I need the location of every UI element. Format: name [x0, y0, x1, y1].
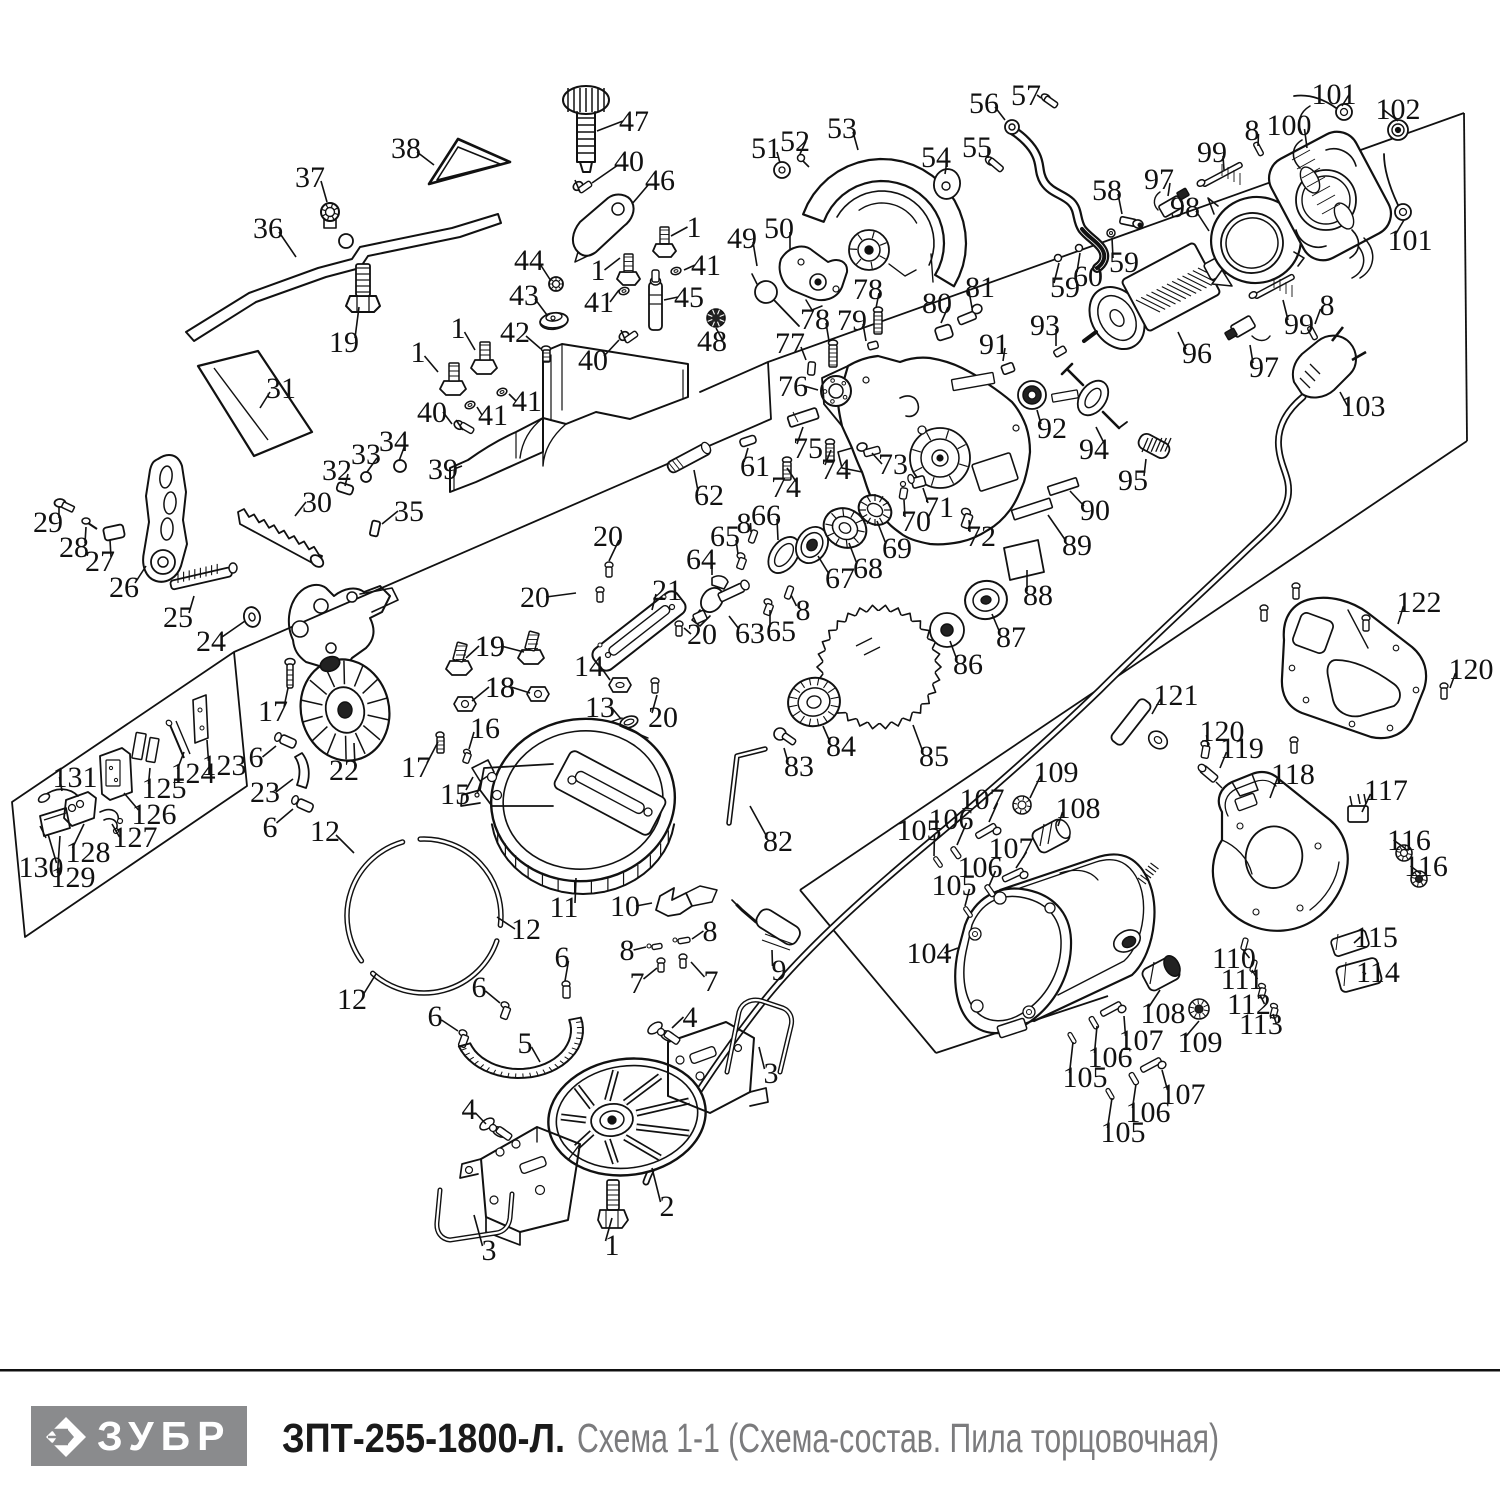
svg-text:8: 8 [796, 594, 811, 627]
svg-text:8: 8 [737, 507, 752, 540]
svg-text:97: 97 [1249, 351, 1279, 384]
svg-text:12: 12 [511, 913, 541, 946]
svg-text:32: 32 [322, 454, 352, 487]
svg-text:41: 41 [478, 399, 508, 432]
svg-text:41: 41 [691, 249, 721, 282]
svg-text:40: 40 [614, 145, 644, 178]
svg-text:8: 8 [1245, 114, 1260, 147]
svg-text:54: 54 [921, 141, 951, 174]
svg-text:82: 82 [763, 825, 793, 858]
svg-text:65: 65 [766, 615, 796, 648]
svg-text:43: 43 [509, 279, 539, 312]
svg-text:16: 16 [470, 712, 500, 745]
svg-text:73: 73 [878, 448, 908, 481]
svg-text:51: 51 [751, 132, 781, 165]
svg-text:23: 23 [250, 776, 280, 809]
svg-text:41: 41 [584, 286, 614, 319]
svg-text:38: 38 [391, 132, 421, 165]
svg-text:52: 52 [780, 125, 810, 158]
svg-text:68: 68 [853, 552, 883, 585]
svg-text:19: 19 [329, 326, 359, 359]
svg-text:105: 105 [1063, 1061, 1108, 1094]
svg-text:53: 53 [827, 112, 857, 145]
svg-text:20: 20 [687, 618, 717, 651]
svg-text:83: 83 [784, 750, 814, 783]
svg-text:96: 96 [1182, 337, 1212, 370]
svg-text:99: 99 [1284, 308, 1314, 341]
svg-text:116: 116 [1404, 850, 1448, 883]
svg-text:78: 78 [853, 273, 883, 306]
svg-text:1: 1 [591, 254, 606, 287]
svg-text:15: 15 [440, 778, 470, 811]
svg-text:6: 6 [555, 941, 570, 974]
svg-text:105: 105 [1101, 1116, 1146, 1149]
svg-text:5: 5 [518, 1027, 533, 1060]
svg-text:63: 63 [735, 617, 765, 650]
svg-text:59: 59 [1050, 271, 1080, 304]
svg-text:99: 99 [1197, 136, 1227, 169]
svg-text:48: 48 [697, 325, 727, 358]
svg-text:33: 33 [351, 438, 381, 471]
svg-text:120: 120 [1449, 653, 1494, 686]
svg-text:121: 121 [1154, 679, 1199, 712]
svg-text:6: 6 [249, 741, 264, 774]
svg-text:8: 8 [703, 915, 718, 948]
svg-text:93: 93 [1030, 309, 1060, 342]
svg-text:21: 21 [652, 574, 682, 607]
svg-text:26: 26 [109, 571, 139, 604]
svg-text:64: 64 [686, 543, 716, 576]
svg-text:101: 101 [1312, 78, 1357, 111]
svg-text:86: 86 [953, 648, 983, 681]
svg-text:22: 22 [329, 754, 359, 787]
svg-text:109: 109 [1178, 1026, 1223, 1059]
svg-text:17: 17 [258, 695, 288, 728]
svg-text:3: 3 [482, 1234, 497, 1267]
svg-text:130: 130 [19, 851, 64, 884]
svg-text:25: 25 [163, 601, 193, 634]
svg-text:80: 80 [922, 287, 952, 320]
svg-text:1: 1 [605, 1229, 620, 1262]
svg-text:89: 89 [1062, 529, 1092, 562]
svg-text:102: 102 [1376, 93, 1421, 126]
svg-text:76: 76 [778, 370, 808, 403]
svg-text:6: 6 [472, 971, 487, 1004]
svg-text:131: 131 [53, 761, 98, 794]
svg-text:122: 122 [1397, 586, 1442, 619]
svg-text:17: 17 [401, 751, 431, 784]
svg-text:66: 66 [751, 499, 781, 532]
svg-text:49: 49 [727, 222, 757, 255]
svg-text:119: 119 [1220, 732, 1264, 765]
svg-text:75: 75 [793, 432, 823, 465]
svg-text:56: 56 [969, 87, 999, 120]
svg-text:ЗПТ-255-1800-Л.Схема 1-1 (Схем: ЗПТ-255-1800-Л.Схема 1-1 (Схема-состав. … [282, 1415, 1219, 1461]
svg-text:3: 3 [764, 1057, 779, 1090]
svg-text:42: 42 [500, 316, 530, 349]
svg-text:127: 127 [113, 821, 158, 854]
svg-text:40: 40 [578, 344, 608, 377]
svg-text:8: 8 [1320, 289, 1335, 322]
svg-text:115: 115 [1354, 921, 1398, 954]
svg-text:10: 10 [610, 890, 640, 923]
svg-text:67: 67 [825, 562, 855, 595]
svg-text:47: 47 [619, 105, 649, 138]
svg-text:90: 90 [1080, 494, 1110, 527]
svg-text:55: 55 [962, 131, 992, 164]
svg-text:105: 105 [932, 869, 977, 902]
svg-text:9: 9 [772, 954, 787, 987]
svg-text:58: 58 [1092, 174, 1122, 207]
svg-text:36: 36 [253, 212, 283, 245]
svg-text:12: 12 [337, 983, 367, 1016]
svg-text:105: 105 [897, 814, 942, 847]
svg-text:13: 13 [585, 691, 615, 724]
svg-text:98: 98 [1170, 191, 1200, 224]
svg-text:20: 20 [593, 520, 623, 553]
svg-text:20: 20 [648, 701, 678, 734]
svg-text:88: 88 [1023, 579, 1053, 612]
svg-text:14: 14 [574, 650, 604, 683]
svg-text:20: 20 [520, 581, 550, 614]
svg-text:31: 31 [266, 372, 296, 405]
svg-text:1: 1 [451, 312, 466, 345]
svg-text:109: 109 [1034, 756, 1079, 789]
svg-text:62: 62 [694, 479, 724, 512]
svg-text:118: 118 [1271, 758, 1315, 791]
svg-text:81: 81 [965, 271, 995, 304]
svg-text:35: 35 [394, 495, 424, 528]
svg-text:8: 8 [620, 934, 635, 967]
svg-text:34: 34 [379, 425, 409, 458]
svg-text:91: 91 [979, 328, 1009, 361]
svg-text:6: 6 [428, 1000, 443, 1033]
svg-text:100: 100 [1267, 109, 1312, 142]
svg-text:117: 117 [1364, 774, 1408, 807]
svg-text:77: 77 [775, 327, 805, 360]
svg-text:6: 6 [263, 811, 278, 844]
svg-text:108: 108 [1056, 792, 1101, 825]
svg-text:72: 72 [966, 520, 996, 553]
svg-text:18: 18 [485, 671, 515, 704]
svg-text:37: 37 [295, 161, 325, 194]
svg-text:101: 101 [1388, 224, 1433, 257]
svg-text:61: 61 [740, 450, 770, 483]
svg-text:87: 87 [996, 621, 1026, 654]
svg-text:69: 69 [882, 532, 912, 565]
svg-text:104: 104 [907, 937, 952, 970]
svg-text:1: 1 [687, 211, 702, 244]
svg-text:19: 19 [475, 630, 505, 663]
svg-text:40: 40 [417, 396, 447, 429]
svg-text:46: 46 [645, 164, 675, 197]
svg-text:103: 103 [1341, 390, 1386, 423]
svg-text:44: 44 [514, 244, 544, 277]
svg-text:85: 85 [919, 740, 949, 773]
svg-text:79: 79 [837, 304, 867, 337]
svg-text:4: 4 [462, 1093, 477, 1126]
svg-text:92: 92 [1037, 412, 1067, 445]
svg-text:11: 11 [550, 891, 579, 924]
svg-text:84: 84 [826, 730, 856, 763]
svg-text:41: 41 [512, 385, 542, 418]
svg-text:4: 4 [683, 1001, 698, 1034]
svg-text:7: 7 [630, 967, 645, 1000]
svg-text:114: 114 [1356, 956, 1400, 989]
svg-text:45: 45 [674, 281, 704, 314]
svg-text:30: 30 [302, 486, 332, 519]
svg-text:113: 113 [1239, 1008, 1283, 1041]
svg-text:7: 7 [704, 965, 719, 998]
svg-text:94: 94 [1079, 433, 1109, 466]
svg-text:12: 12 [310, 815, 340, 848]
svg-text:1: 1 [411, 336, 426, 369]
svg-text:ЗУБР: ЗУБР [97, 1413, 231, 1459]
svg-text:39: 39 [428, 453, 458, 486]
svg-text:24: 24 [196, 625, 226, 658]
svg-text:2: 2 [660, 1190, 675, 1223]
svg-text:74: 74 [821, 453, 851, 486]
svg-text:95: 95 [1118, 464, 1148, 497]
svg-text:50: 50 [764, 212, 794, 245]
svg-text:57: 57 [1011, 79, 1041, 112]
svg-text:59: 59 [1109, 246, 1139, 279]
